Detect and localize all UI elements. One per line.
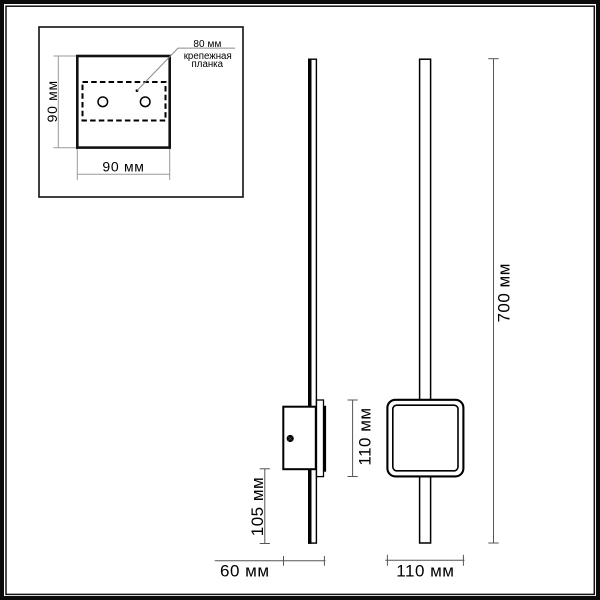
- svg-text:110 мм: 110 мм: [355, 407, 374, 465]
- svg-text:105 мм: 105 мм: [248, 477, 267, 536]
- svg-text:60 мм: 60 мм: [220, 562, 270, 581]
- svg-text:80 мм: 80 мм: [193, 39, 221, 50]
- svg-text:90 мм: 90 мм: [102, 159, 144, 175]
- svg-text:110 мм: 110 мм: [396, 562, 454, 581]
- svg-text:700 мм: 700 мм: [495, 263, 514, 322]
- svg-text:планка: планка: [192, 59, 224, 70]
- svg-text:90 мм: 90 мм: [44, 80, 60, 122]
